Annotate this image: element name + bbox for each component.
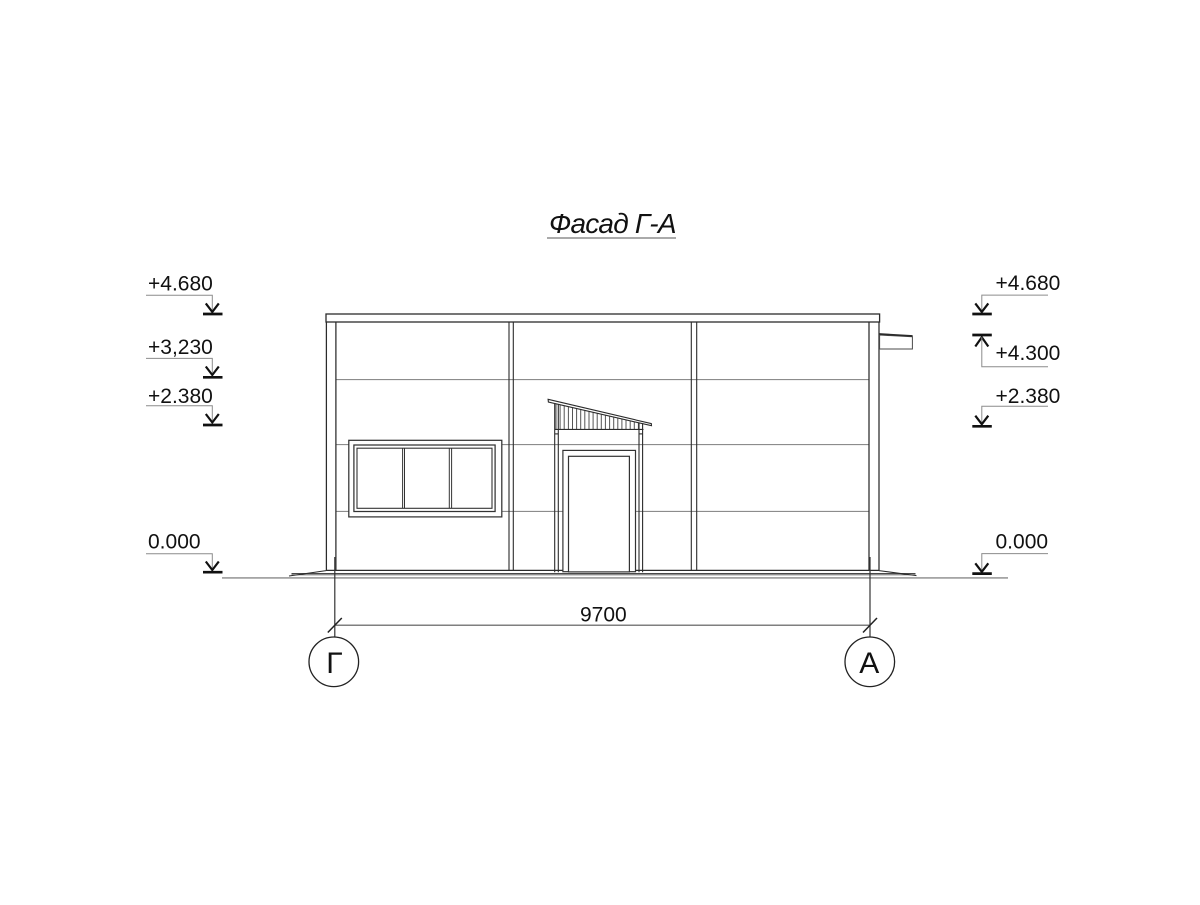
svg-text:+4.680: +4.680 xyxy=(148,272,213,295)
svg-text:+2.380: +2.380 xyxy=(996,385,1061,408)
svg-text:0.000: 0.000 xyxy=(996,530,1049,553)
svg-text:0.000: 0.000 xyxy=(148,530,201,553)
svg-text:+3,230: +3,230 xyxy=(148,336,213,359)
svg-text:+4.680: +4.680 xyxy=(996,272,1061,295)
svg-text:+2.380: +2.380 xyxy=(148,385,213,408)
svg-text:Фасад Г-А: Фасад Г-А xyxy=(549,208,676,239)
svg-text:+4.300: +4.300 xyxy=(996,342,1061,365)
svg-text:9700: 9700 xyxy=(580,604,627,627)
svg-text:А: А xyxy=(859,647,879,680)
svg-text:Г: Г xyxy=(326,647,342,680)
